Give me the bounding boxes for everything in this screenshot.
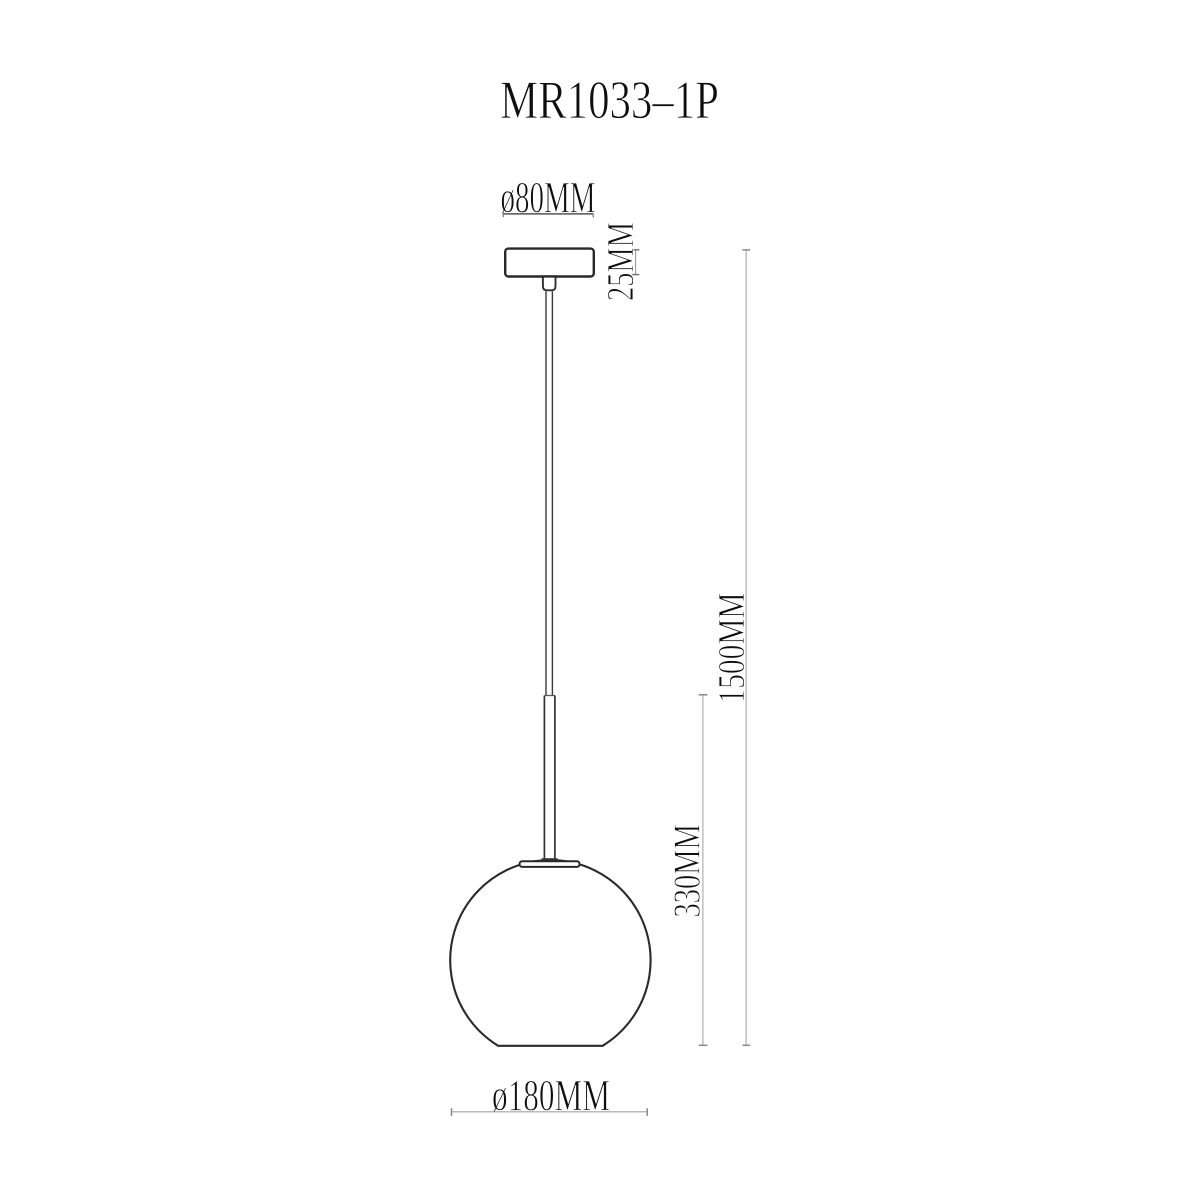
svg-text:1500MM: 1500MM: [711, 593, 753, 704]
svg-text:330MM: 330MM: [667, 824, 709, 918]
svg-text:ø180MM: ø180MM: [492, 1071, 610, 1120]
svg-text:MR1033–1P: MR1033–1P: [500, 70, 719, 130]
svg-text:25MM: 25MM: [600, 222, 642, 301]
